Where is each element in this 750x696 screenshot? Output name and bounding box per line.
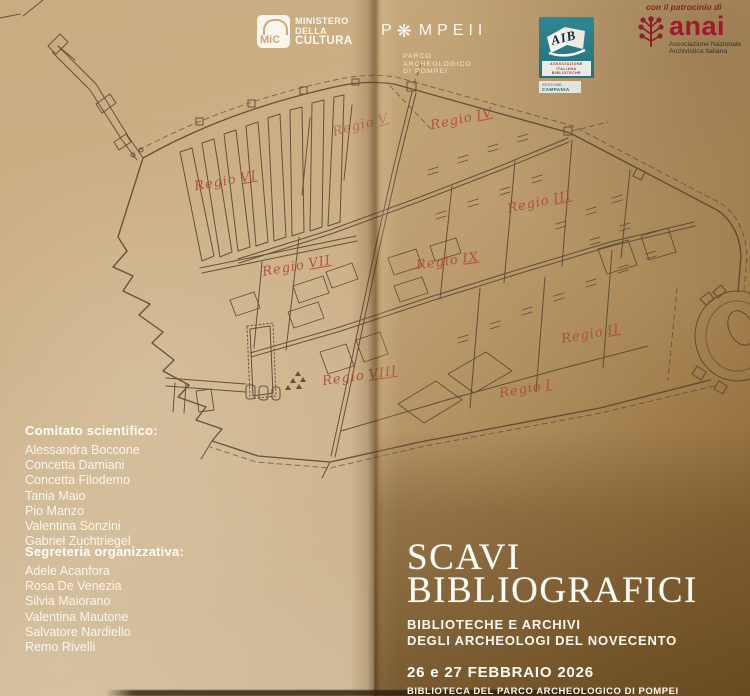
secretariat-member: Silvia Maiorano xyxy=(25,594,184,609)
event-date: 26 e 27 FEBBRAIO 2026 xyxy=(407,664,698,681)
rosette-icon: ❋ xyxy=(397,23,417,39)
pompeii-rest: MPEII xyxy=(419,22,488,40)
logo-anai: anai Associazione Nazionale Archivistica… xyxy=(636,15,741,56)
organizing-secretariat-title: Segreteria organizzativa: xyxy=(25,544,184,559)
anai-subtitle: Associazione Nazionale Archivistica Ital… xyxy=(669,41,741,56)
mic-logo-icon: MiC xyxy=(257,15,290,48)
aib-section-tag: SEZIONE CAMPANIA xyxy=(539,81,581,93)
pompeii-p: P xyxy=(381,22,397,40)
committee-member: Tania Maio xyxy=(25,489,158,504)
mic-logo-text: MINISTERO DELLA CULTURA xyxy=(295,15,353,48)
secretariat-member: Rosa De Venezia xyxy=(25,579,184,594)
event-title-block: SCAVI BIBLIOGRAFICI BIBLIOTECHE E ARCHIV… xyxy=(407,541,698,696)
anai-acronym: anai xyxy=(669,15,741,38)
mic-line3: CULTURA xyxy=(295,37,353,47)
event-venue: BIBLIOTECA DEL PARCO ARCHEOLOGICO DI POM… xyxy=(407,686,698,696)
logo-ministero-cultura: MiC MINISTERO DELLA CULTURA xyxy=(257,15,353,48)
event-title-line2: BIBLIOGRAFICI xyxy=(407,574,698,607)
scientific-committee-title: Comitato scientifico: xyxy=(25,423,158,438)
anai-tree-icon xyxy=(636,15,666,49)
committee-member: Alessandra Boccone xyxy=(25,443,158,458)
aib-logo-box: AIB ASSOCIAZIONE ITALIANA BIBLIOTECHE xyxy=(539,17,594,78)
secretariat-member: Adele Acanfora xyxy=(25,564,184,579)
pompeii-subtitle: PARCO ARCHEOLOGICO DI POMPEI xyxy=(403,53,487,76)
committee-member: Concetta Filodemo xyxy=(25,473,158,488)
event-poster: RegioV RegioIV RegioVI RegioIII RegioVII… xyxy=(0,0,750,696)
anai-text: anai Associazione Nazionale Archivistica… xyxy=(669,15,741,56)
committee-member: Concetta Damiani xyxy=(25,458,158,473)
committee-member: Valentina Sonzini xyxy=(25,519,158,534)
organizing-secretariat: Segreteria organizzativa: Adele Acanfora… xyxy=(25,544,184,655)
scientific-committee: Comitato scientifico: Alessandra Boccone… xyxy=(25,423,158,549)
logo-aib: AIB ASSOCIAZIONE ITALIANA BIBLIOTECHE SE… xyxy=(539,17,595,93)
secretariat-member: Remo Rivelli xyxy=(25,640,184,655)
event-subtitle: BIBLIOTECHE E ARCHIVI DEGLI ARCHEOLOGI D… xyxy=(407,617,698,649)
secretariat-member: Valentina Mautone xyxy=(25,610,184,625)
committee-member: Pio Manzo xyxy=(25,504,158,519)
secretariat-member: Salvatore Nardiello xyxy=(25,625,184,640)
pompeii-wordmark: P ❋ MPEII xyxy=(381,22,487,40)
aib-association-lines: ASSOCIAZIONE ITALIANA BIBLIOTECHE xyxy=(542,61,591,76)
logo-parco-pompei: P ❋ MPEII PARCO ARCHEOLOGICO DI POMPEI xyxy=(381,22,487,76)
